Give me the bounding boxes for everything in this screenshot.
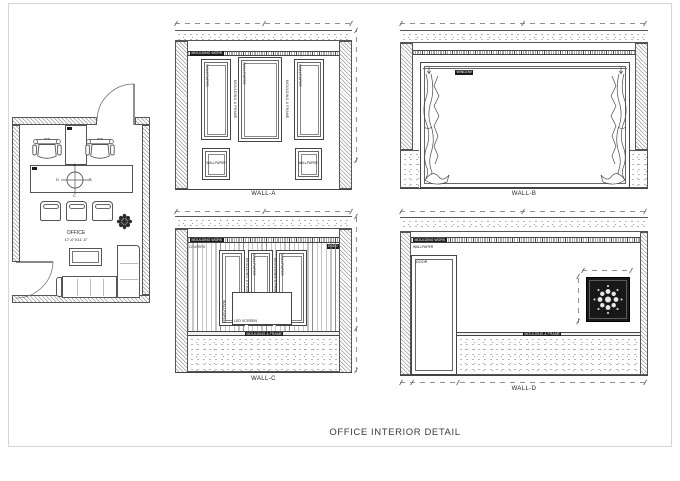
visitor-chair-1 bbox=[40, 201, 61, 221]
base-block-b-left bbox=[400, 150, 419, 188]
ceiling-slab-c bbox=[175, 216, 352, 229]
room-size: 17'-0"X11'-0" bbox=[20, 237, 132, 242]
cornice-label-c: MOULDING WORK bbox=[190, 238, 224, 243]
artwork-frame bbox=[586, 277, 630, 322]
wall-c-elevation: MOULDING WORK LOUVERS DADO MOULDING & FR… bbox=[175, 208, 360, 388]
sofa-right bbox=[117, 245, 140, 298]
desk-return-tag bbox=[67, 127, 72, 130]
dim-line-c-right bbox=[356, 216, 357, 372]
coffee-table bbox=[69, 248, 102, 266]
column-d-left bbox=[400, 232, 411, 375]
wall-c-panel-right-label: WALLPAPER bbox=[280, 253, 284, 276]
visitor-chair-2 bbox=[66, 201, 87, 221]
desk-return bbox=[65, 125, 87, 165]
compass-letter-b: B bbox=[89, 177, 92, 182]
orientation-compass bbox=[60, 165, 90, 195]
wall-a-label: WALL-A bbox=[175, 191, 352, 197]
desk-tag bbox=[32, 167, 37, 170]
wall-c-panel-center-label: WALLPAPER bbox=[252, 253, 256, 276]
cornice-label-a: MOULDING WORK bbox=[190, 51, 224, 56]
wall-c-frame-strip-2: MOULDING & FRAME bbox=[273, 258, 277, 297]
compass-letter-d: D bbox=[56, 177, 59, 182]
led-screen-label: LED SCREEN bbox=[234, 319, 257, 324]
door bbox=[411, 255, 457, 375]
wall-a-panel-center-label: WALLPAPER bbox=[242, 62, 246, 85]
plan-wall-right bbox=[142, 125, 150, 295]
artwork-dim-top bbox=[582, 270, 632, 271]
dado-area-c bbox=[188, 336, 339, 372]
plan-wall-top-right bbox=[135, 117, 150, 125]
floor-line-a bbox=[175, 189, 352, 190]
wall-a-panel-right-label: WALLPAPER bbox=[298, 64, 302, 87]
ceiling-slab-a bbox=[175, 30, 352, 41]
mandala-art bbox=[587, 278, 629, 321]
plant bbox=[116, 213, 133, 230]
dado-area-d bbox=[457, 336, 640, 375]
wallpaper-top-label-d: WALLPAPER bbox=[413, 245, 433, 250]
drawing-title: OFFICE INTERIOR DETAIL bbox=[290, 427, 500, 438]
floor-line-d bbox=[400, 375, 648, 376]
visitor-chair-3 bbox=[92, 201, 113, 221]
wall-a-bottom-right-label: WALLPAPER bbox=[296, 161, 320, 166]
dim-line-b bbox=[400, 23, 648, 24]
compass-letter-a: A bbox=[73, 162, 76, 167]
column-c-left bbox=[175, 229, 188, 373]
door-swing-top bbox=[96, 83, 136, 128]
drawing-sheet: A B C D OFFICE 17'-0"X11'-0" bbox=[0, 0, 680, 481]
cornice-label-d: MOULDING WORK bbox=[413, 238, 447, 243]
column-a-left bbox=[175, 41, 188, 189]
dim-line-a-right bbox=[356, 30, 357, 162]
plan-wall-top-left bbox=[12, 117, 97, 125]
wall-a-frame-strip-2: MOULDING & FRAME bbox=[285, 80, 289, 119]
wall-d-elevation: MOULDING WORK WALLPAPER DOOR bbox=[398, 208, 650, 394]
wall-a-panel-left-label: WALLPAPER bbox=[205, 64, 209, 87]
dim-line-d bbox=[400, 211, 648, 212]
column-b-right bbox=[635, 43, 648, 150]
window-top-rail bbox=[423, 68, 627, 69]
artwork-dim-left bbox=[578, 276, 579, 323]
curtain-right bbox=[598, 65, 628, 187]
wall-b-elevation: WINDOW WALL-B bbox=[398, 20, 650, 200]
wall-d-label: WALL-D bbox=[398, 386, 650, 392]
office-chair-left bbox=[32, 138, 62, 162]
window-label: WINDOW bbox=[455, 70, 473, 75]
compass-letter-c: C bbox=[73, 193, 76, 198]
wall-c-frame-strip-1: MOULDING & FRAME bbox=[245, 258, 249, 297]
plan-wall-left bbox=[12, 125, 20, 262]
door-swing-left bbox=[12, 258, 58, 300]
wall-c-label: WALL-C bbox=[175, 376, 352, 382]
wall-a-bottom-left-label: WALLPAPER bbox=[204, 161, 228, 166]
curtain-left bbox=[422, 65, 452, 187]
wall-a-elevation: MOULDING WORK WALLPAPER WALLPAPER WALLPA… bbox=[175, 20, 360, 200]
floor-plan: A B C D OFFICE 17'-0"X11'-0" bbox=[12, 117, 150, 303]
floor-line-c bbox=[175, 372, 352, 373]
column-a-right bbox=[339, 41, 352, 189]
room-label: OFFICE bbox=[20, 230, 132, 236]
wall-b-label: WALL-B bbox=[398, 191, 650, 197]
ceiling-slab-d bbox=[400, 217, 648, 232]
floor-line-b bbox=[400, 188, 648, 189]
ceiling-slab-b bbox=[400, 30, 648, 43]
column-c-right bbox=[339, 229, 352, 373]
cornice-band-b bbox=[413, 50, 635, 55]
base-block-b-right bbox=[629, 150, 648, 188]
sofa-bottom bbox=[62, 276, 117, 298]
wall-c-panel-left-label: WALLPAPER bbox=[222, 300, 226, 323]
column-d-right bbox=[640, 232, 648, 375]
wall-a-frame-strip-1: MOULDING & FRAME bbox=[233, 80, 237, 119]
office-chair-right bbox=[85, 138, 115, 162]
column-b-left bbox=[400, 43, 413, 150]
dim-line-d-bottom bbox=[400, 382, 648, 383]
door-label: DOOR bbox=[416, 260, 427, 265]
